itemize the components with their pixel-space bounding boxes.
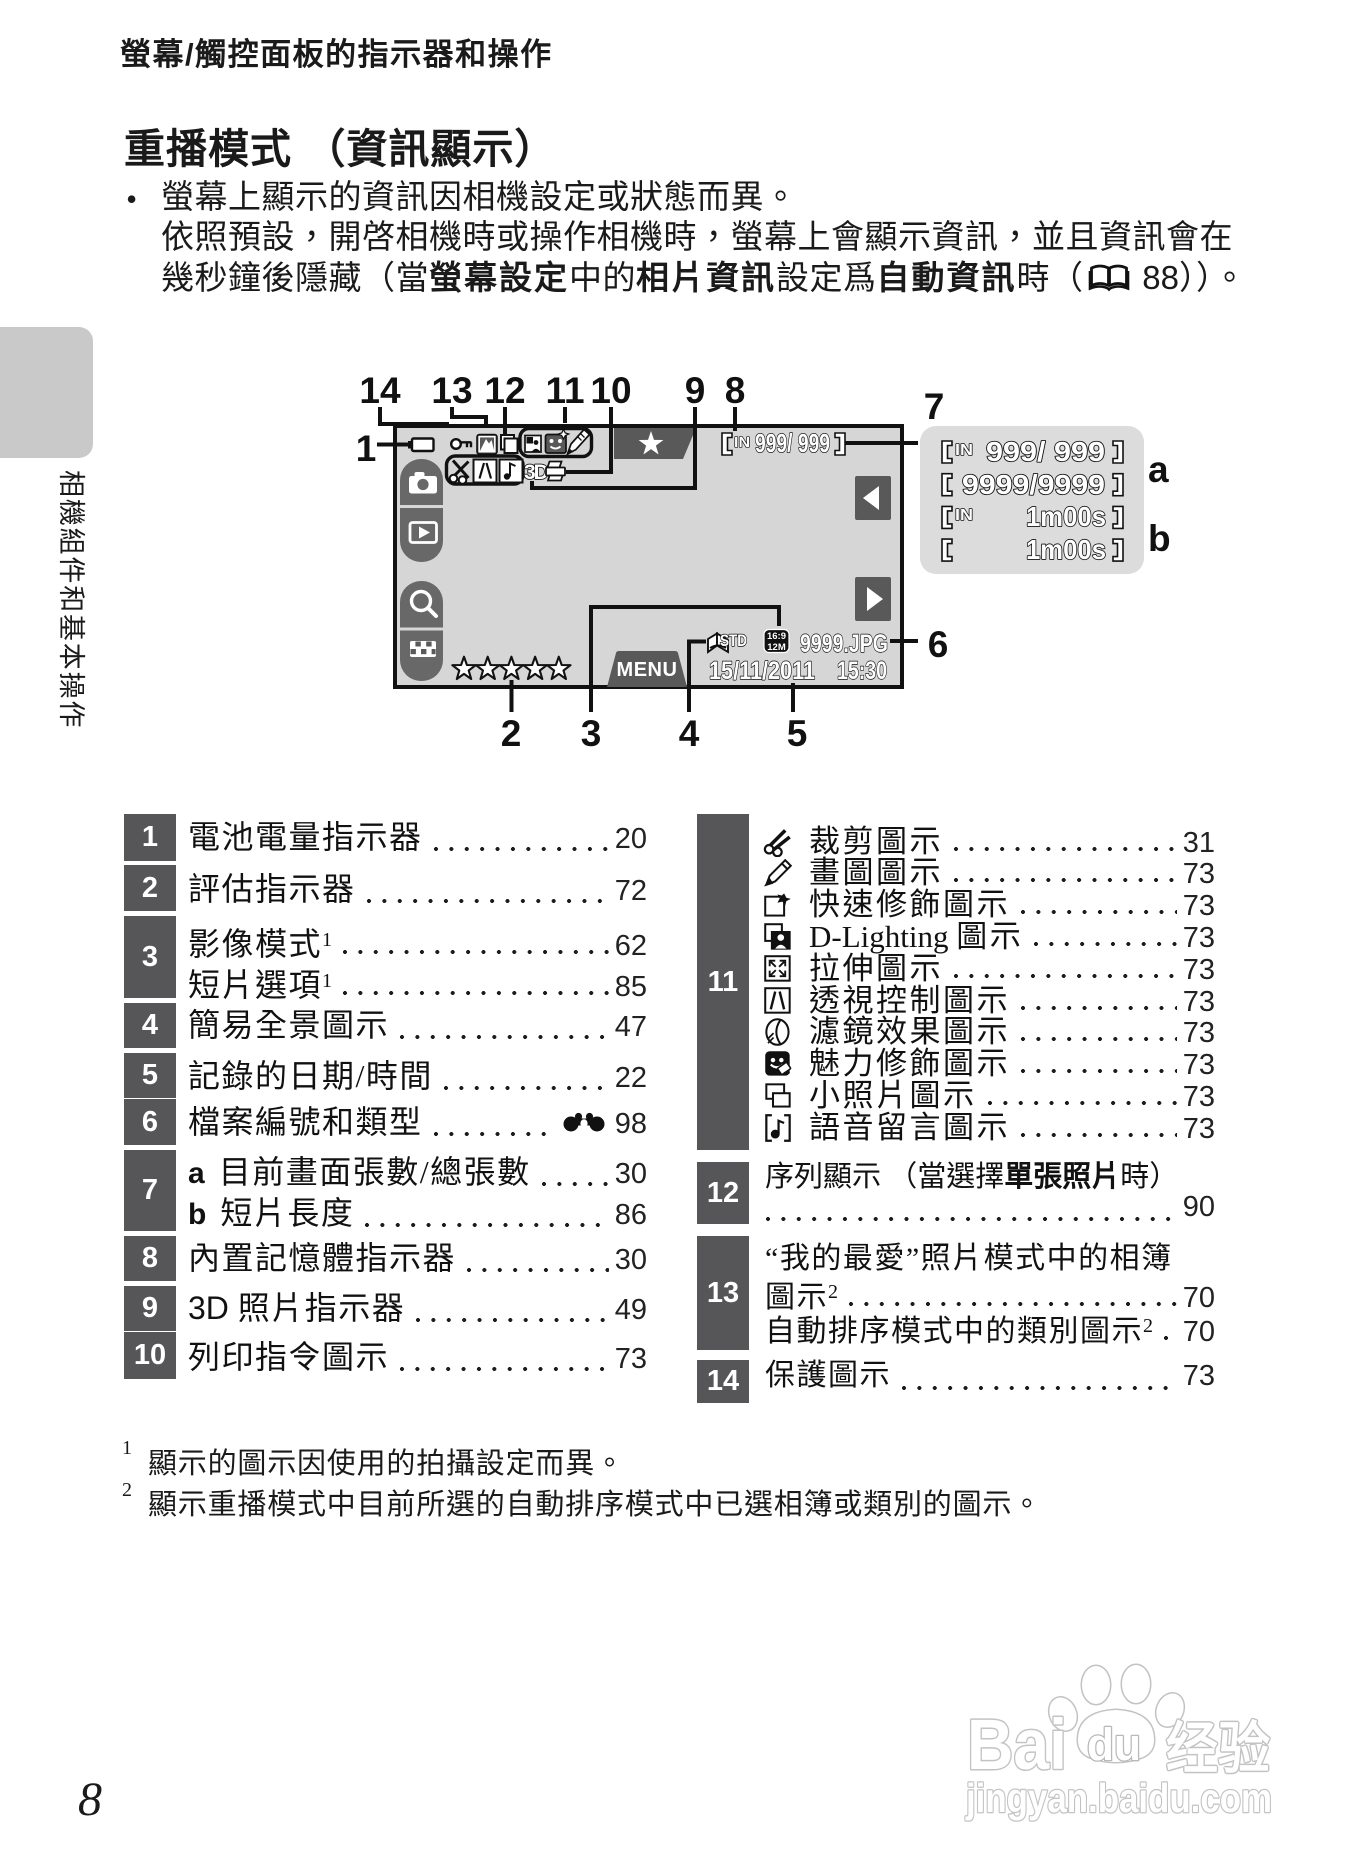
svg-text:15/11/2011: 15/11/2011	[709, 657, 815, 685]
svg-text:MENU: MENU	[617, 659, 678, 681]
svg-text:STD: STD	[720, 631, 747, 650]
svg-text:11: 11	[545, 370, 584, 411]
svg-text:12: 12	[484, 370, 525, 411]
svg-text:4: 4	[679, 713, 700, 754]
svg-text:7: 7	[924, 386, 945, 427]
svg-text:999/ 999: 999/ 999	[986, 436, 1105, 467]
svg-text:2: 2	[501, 713, 522, 754]
svg-text:1: 1	[356, 428, 377, 469]
svg-text:15:30: 15:30	[837, 657, 887, 685]
svg-text:5: 5	[787, 713, 808, 754]
svg-text:10: 10	[590, 370, 631, 411]
svg-text:IN: IN	[734, 434, 750, 451]
svg-text:经验: 经验	[1166, 1717, 1270, 1780]
svg-text:du: du	[1087, 1719, 1141, 1770]
svg-text:jingyan.baidu.com: jingyan.baidu.com	[965, 1775, 1272, 1821]
svg-text:9: 9	[685, 370, 706, 411]
svg-text:1m00s: 1m00s	[1026, 534, 1106, 565]
svg-text:1m00s: 1m00s	[1026, 501, 1106, 532]
svg-text:3D: 3D	[524, 461, 549, 484]
svg-text:6: 6	[928, 624, 949, 665]
svg-text:14: 14	[359, 370, 401, 411]
svg-text:b: b	[1148, 518, 1171, 559]
svg-text:IN: IN	[955, 507, 973, 524]
svg-text:IN: IN	[955, 442, 973, 459]
svg-text:9999.JPG: 9999.JPG	[800, 630, 888, 658]
svg-text:12M: 12M	[767, 642, 786, 653]
svg-text:9999/9999: 9999/9999	[962, 469, 1105, 500]
svg-text:13: 13	[431, 370, 472, 411]
svg-text:a: a	[1148, 449, 1169, 490]
svg-text:999/ 999: 999/ 999	[755, 428, 830, 458]
svg-text:8: 8	[725, 370, 746, 411]
svg-text:3: 3	[581, 713, 602, 754]
svg-text:Bai: Bai	[967, 1706, 1067, 1785]
svg-text:16:9: 16:9	[767, 631, 786, 642]
